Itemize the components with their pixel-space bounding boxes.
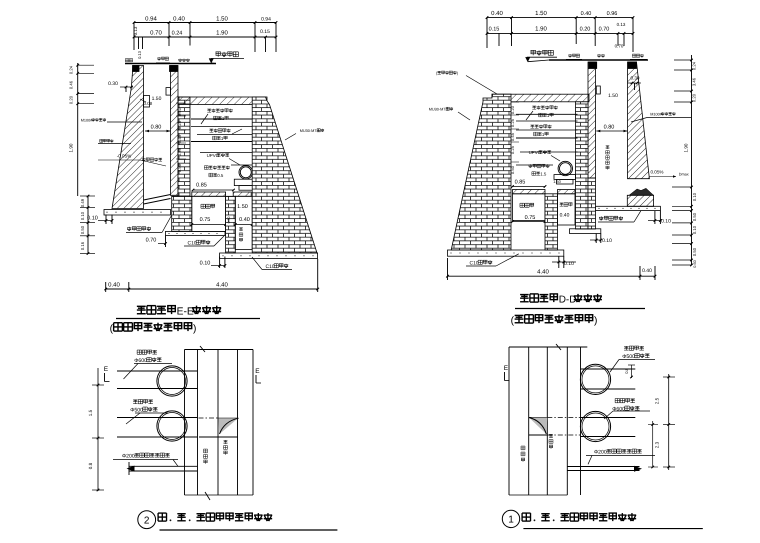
- svg-text:1.50: 1.50: [535, 10, 547, 17]
- svg-text:1.90: 1.90: [535, 26, 547, 33]
- svg-text:0.70: 0.70: [615, 44, 624, 49]
- svg-text:1.50: 1.50: [553, 179, 562, 184]
- svg-text:M100#: M100#: [81, 119, 93, 123]
- svg-text:0.30: 0.30: [227, 217, 231, 224]
- svg-text:E-E: E-E: [177, 307, 194, 318]
- svg-text:0.15: 0.15: [260, 29, 270, 35]
- svg-text:1.5: 1.5: [88, 409, 93, 416]
- svg-text:0.85: 0.85: [515, 180, 526, 186]
- svg-text:0.24: 0.24: [692, 61, 697, 70]
- svg-text:1.50: 1.50: [216, 16, 228, 23]
- svg-text:0.13: 0.13: [137, 50, 142, 59]
- svg-text:3.46: 3.46: [692, 77, 697, 86]
- svg-text:0.13: 0.13: [133, 26, 138, 35]
- svg-text:Φ600: Φ600: [134, 358, 147, 364]
- svg-text:M100#: M100#: [650, 113, 662, 117]
- svg-text:Φ200: Φ200: [122, 454, 135, 460]
- svg-text:E: E: [504, 365, 509, 372]
- svg-text:0.40: 0.40: [581, 11, 592, 17]
- svg-text:1.50: 1.50: [237, 204, 248, 210]
- svg-text:0.10: 0.10: [200, 261, 211, 267]
- svg-text:Φ600: Φ600: [612, 407, 625, 413]
- svg-text:0.10: 0.10: [564, 261, 574, 267]
- svg-text:0.50: 0.50: [177, 163, 182, 172]
- svg-text:0.50: 0.50: [692, 247, 697, 256]
- svg-text:): ): [193, 324, 196, 335]
- svg-text:0.24: 0.24: [69, 65, 74, 74]
- svg-text:Dmax: Dmax: [679, 173, 689, 177]
- svg-text:0.30: 0.30: [108, 81, 118, 87]
- svg-text:4.40: 4.40: [537, 269, 549, 276]
- svg-text:MU30-M7.5: MU30-M7.5: [429, 108, 449, 112]
- svg-text:0.25: 0.25: [177, 147, 182, 156]
- svg-text:0.45: 0.45: [177, 134, 182, 143]
- svg-text:UPVC: UPVC: [207, 153, 219, 158]
- svg-text:1.5: 1.5: [540, 172, 547, 177]
- svg-text:1.50: 1.50: [152, 96, 162, 102]
- svg-text:0.94: 0.94: [261, 17, 271, 23]
- svg-text:0.10: 0.10: [661, 219, 671, 225]
- svg-text:0.75: 0.75: [200, 217, 211, 223]
- svg-text:0.24: 0.24: [172, 31, 183, 37]
- svg-text:0.80: 0.80: [604, 125, 615, 131]
- svg-text:0.13: 0.13: [617, 22, 626, 27]
- svg-text:0.10: 0.10: [602, 238, 612, 244]
- svg-text:1.90: 1.90: [216, 30, 228, 37]
- svg-text:0.49: 0.49: [80, 198, 85, 207]
- svg-text:1.50: 1.50: [608, 93, 618, 99]
- svg-text:0.75: 0.75: [525, 215, 536, 221]
- svg-text:0.10: 0.10: [692, 192, 697, 201]
- svg-text:UPVC: UPVC: [529, 150, 541, 155]
- svg-text:2.3: 2.3: [655, 441, 660, 448]
- svg-text:2: 2: [144, 516, 150, 527]
- svg-text:4.40: 4.40: [216, 282, 228, 289]
- svg-text:0.10: 0.10: [87, 216, 98, 222]
- svg-text:0.30: 0.30: [631, 76, 640, 81]
- svg-text:0.20: 0.20: [580, 27, 591, 33]
- svg-text:0.80: 0.80: [151, 125, 162, 131]
- svg-text:1.90: 1.90: [684, 143, 689, 152]
- svg-text:0.8: 0.8: [88, 462, 93, 469]
- svg-text:0.15: 0.15: [489, 27, 500, 33]
- svg-text:0.40: 0.40: [491, 10, 503, 17]
- svg-text:E: E: [104, 366, 109, 373]
- svg-text:MU30-M7.5: MU30-M7.5: [300, 129, 320, 133]
- svg-text:0.5: 0.5: [217, 173, 224, 178]
- svg-text:0.20: 0.20: [69, 95, 74, 104]
- svg-text:0.16: 0.16: [80, 241, 85, 250]
- svg-text:Φ500: Φ500: [622, 354, 635, 360]
- svg-text:0.70: 0.70: [146, 238, 157, 244]
- svg-text:E: E: [255, 368, 260, 375]
- svg-text:0.50: 0.50: [80, 225, 85, 234]
- svg-text:): ): [594, 316, 597, 327]
- svg-text:(: (: [511, 316, 515, 327]
- svg-text:0.70: 0.70: [150, 30, 162, 37]
- svg-text:Φ200: Φ200: [594, 450, 607, 456]
- svg-text:0.96: 0.96: [607, 11, 618, 17]
- svg-text:0.40: 0.40: [173, 16, 185, 23]
- svg-text:0.40: 0.40: [239, 217, 250, 223]
- svg-text:-0.05%: -0.05%: [117, 154, 132, 159]
- svg-text:C10: C10: [265, 264, 274, 270]
- svg-text:0.50: 0.50: [692, 212, 697, 221]
- svg-text:0.10: 0.10: [692, 225, 697, 234]
- svg-text:0.05%: 0.05%: [650, 170, 663, 175]
- svg-text:0.46: 0.46: [69, 80, 74, 89]
- svg-text:C10: C10: [187, 241, 196, 247]
- svg-text:0.60: 0.60: [693, 260, 697, 267]
- svg-text:0.94: 0.94: [145, 16, 157, 23]
- svg-text:1: 1: [508, 515, 514, 526]
- svg-text:0.85: 0.85: [196, 183, 207, 189]
- svg-text:0.20: 0.20: [177, 107, 182, 116]
- svg-text:0.8: 0.8: [624, 367, 629, 373]
- svg-text:0.40: 0.40: [560, 213, 570, 219]
- svg-text:Φ500: Φ500: [130, 408, 143, 414]
- svg-text:0.40: 0.40: [642, 268, 652, 274]
- svg-text:0.20: 0.20: [692, 93, 697, 102]
- svg-text:0.70: 0.70: [599, 27, 610, 33]
- svg-text:0.10: 0.10: [80, 211, 85, 220]
- svg-text:0.40: 0.40: [108, 282, 120, 289]
- svg-text:C10: C10: [469, 261, 478, 267]
- svg-text:1.90: 1.90: [69, 143, 74, 152]
- svg-text:0.25: 0.25: [177, 120, 182, 129]
- svg-text:2.5: 2.5: [655, 397, 660, 404]
